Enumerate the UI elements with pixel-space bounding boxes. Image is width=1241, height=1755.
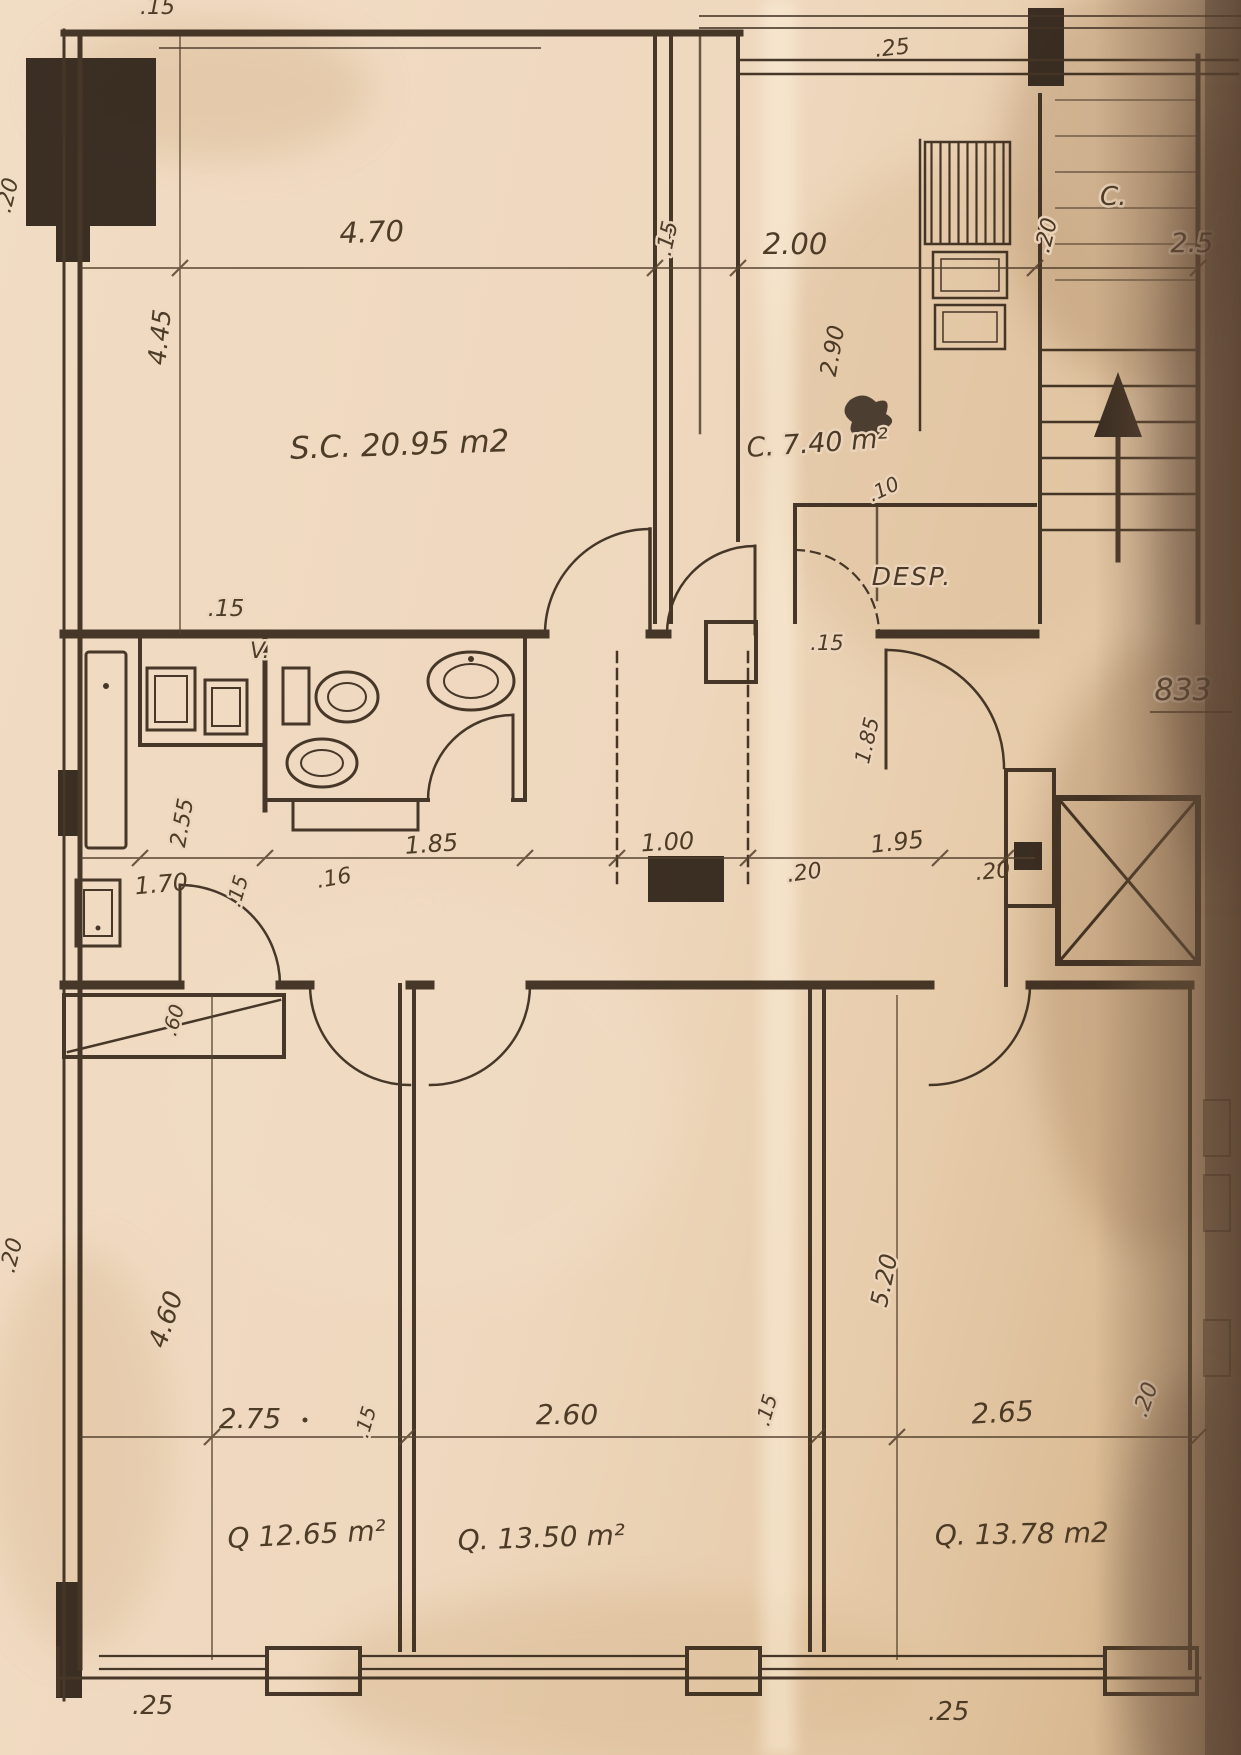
dim-bed1-width: 2.75 [219, 1402, 281, 1435]
water-heater-icon [76, 880, 120, 946]
dim-left-edge-bottom: .20 [0, 1235, 28, 1275]
dim-bed3-width: 2.65 [971, 1394, 1035, 1430]
room-label-pantry: DESP. [872, 562, 953, 591]
dim-living-height: 4.45 [142, 308, 177, 366]
dim-desp-height: 1.85 [850, 715, 884, 766]
counter-icon [86, 652, 126, 848]
dim-bed2-width: 2.60 [536, 1398, 598, 1431]
dim-bottom-wall-left: .25 [132, 1691, 173, 1721]
dim-bath-width: 1.85 [404, 828, 459, 860]
floor-plan-sheet: .15 4.70 .15 2.00 .25 2.90 .20 C. 2.5 4.… [0, 0, 1241, 1755]
room-label-living: S.C. 20.95 m2 [289, 423, 510, 467]
vent-shaft-label: V. [250, 639, 270, 664]
dim-top-partial: .15 [140, 0, 175, 20]
sink-icon [428, 652, 514, 710]
dim-hall-wall-b: .16 [315, 863, 354, 894]
room-label-bedroom1: Q 12.65 m² [227, 1514, 387, 1555]
dark-margin-band [1095, 0, 1241, 1755]
toilet-icon [283, 668, 378, 724]
dim-hall-wall-d: .20 [974, 858, 1011, 886]
bidet-icon [287, 739, 357, 787]
dim-living-width: 4.70 [339, 214, 405, 250]
dim-kitchen-width: 2.00 [763, 227, 828, 261]
dim-hall-wall: .15 [810, 631, 843, 655]
dim-hall-width: 1.00 [640, 827, 695, 858]
dim-bath-top-wall: .15 [208, 596, 245, 622]
dim-left-edge-top: .20 [0, 175, 24, 215]
dim-dot [303, 1418, 308, 1423]
sink-drainer-icon [925, 142, 1010, 244]
wall-block [648, 856, 724, 902]
floor-plan-drawing: .15 4.70 .15 2.00 .25 2.90 .20 C. 2.5 4.… [0, 0, 1241, 1755]
dim-bed-wall-a: .15 [349, 1403, 381, 1440]
dim-bed1-height: 4.60 [143, 1287, 189, 1351]
dim-bottom-wall-right: .25 [928, 1697, 969, 1727]
room-label-bedroom2: Q. 13.50 m² [457, 1518, 625, 1557]
dim-terrace-width: 1.70 [133, 868, 189, 901]
dim-desp-width: 1.95 [869, 825, 925, 858]
dim-hall-wall-c: .20 [785, 858, 823, 888]
dim-vent-height: 2.55 [166, 797, 199, 850]
dim-terrace-wall: .15 [221, 872, 253, 909]
dim-kitchen-top-wall: .25 [874, 34, 911, 63]
laundry-tubs-icon [147, 668, 247, 734]
room-label-bedroom3: Q. 13.78 m2 [935, 1516, 1110, 1552]
